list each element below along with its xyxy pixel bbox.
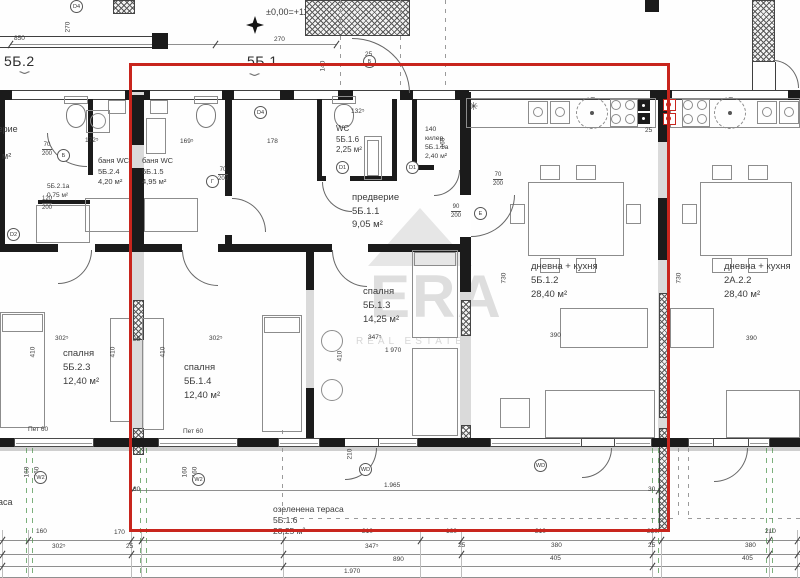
circle-marker: D4 (70, 0, 83, 13)
furniture (726, 390, 800, 438)
floor-plan-canvas: ±0,00=+110,50 ERA REAL ESTATE 5Б.25Б.1ба… (0, 0, 800, 578)
furniture (748, 165, 768, 180)
wall-segment (752, 62, 753, 90)
window (14, 438, 94, 447)
fixture-circle (90, 113, 106, 129)
wall-segment (678, 448, 679, 518)
chevron-down-icon: ⌄ (14, 66, 36, 77)
fixture-circle (683, 114, 693, 124)
wall-segment (0, 244, 58, 252)
dimension-label: 160 (25, 467, 32, 478)
wall-segment (0, 540, 800, 541)
wall-segment (645, 0, 659, 12)
dimension-label: 405 (550, 556, 561, 563)
dimension-label: 270 (66, 22, 73, 33)
dimension-label: 347⁵ (365, 544, 379, 551)
furniture (108, 100, 126, 114)
window (748, 438, 770, 447)
dimension-label: 170 (114, 530, 125, 537)
circle-marker: W2 (34, 471, 47, 484)
wall-segment (688, 518, 800, 519)
dimension-label: 850 (14, 36, 25, 43)
dimension-label: 210 (765, 529, 776, 536)
toilet (64, 96, 88, 104)
furniture (700, 182, 792, 256)
furniture (712, 165, 732, 180)
dimension-label: 302⁵ (52, 544, 66, 551)
dimension-label: 730 (677, 273, 684, 284)
room-label: спалня 5Б.2.3 12,40 м² (63, 347, 99, 389)
north-arrow-icon (246, 16, 264, 34)
dimension-label: 890 (393, 557, 404, 564)
dimension-label: 380 (551, 543, 562, 550)
wall-segment (688, 448, 689, 518)
dimension-label: 25 (648, 543, 655, 550)
cooktop-dot (728, 111, 732, 115)
furniture (2, 314, 43, 332)
wall-segment (0, 36, 168, 37)
dimension-label: 172⁵ (85, 138, 99, 145)
dimension-label: 25 (126, 544, 133, 551)
toilet (66, 104, 86, 128)
wall-segment (752, 0, 775, 62)
wall-segment (0, 438, 14, 447)
wall-segment (10, 44, 336, 45)
circle-marker: D2 (7, 228, 20, 241)
dimension-label: 160 (36, 529, 47, 536)
dimension-label: 1.970 (344, 569, 360, 576)
wall-segment (0, 47, 168, 48)
furniture (110, 318, 130, 422)
furniture (682, 204, 697, 224)
dimension-label: 410 (31, 347, 38, 358)
door-arc (58, 250, 92, 284)
dimension-label: 380 (745, 543, 756, 550)
furniture (670, 308, 714, 348)
dimension-label: 25 (458, 543, 465, 550)
dimension-label: 270 (274, 37, 285, 44)
circle-marker: Б (57, 149, 70, 162)
room-label: баня WC 5Б.2.4 4,20 м² (98, 156, 129, 188)
room-label: м² (2, 151, 11, 162)
dimension-label: 405 (742, 556, 753, 563)
furniture (85, 198, 131, 232)
wall-segment (772, 448, 773, 578)
window (688, 438, 714, 447)
door-size-label: 120200 (42, 196, 52, 212)
dimension-label: 410 (111, 347, 118, 358)
fixture-circle (697, 114, 707, 124)
wall-segment (0, 566, 800, 567)
room-label: предверие (0, 124, 18, 135)
door-arc (773, 60, 799, 88)
wall-segment (0, 92, 5, 245)
wall-segment (113, 0, 135, 14)
highlight-rectangle (129, 63, 670, 532)
wall-segment (152, 33, 168, 49)
fixture-circle (762, 107, 772, 117)
room-label: тераса (0, 497, 13, 508)
dimension-label: 390 (746, 336, 757, 343)
door-arc (714, 448, 748, 482)
dimension-label: 302⁵ (55, 336, 69, 343)
fixture-circle (683, 100, 693, 110)
dim-tick (334, 41, 340, 49)
wall-segment (770, 438, 800, 447)
room-label: дневна + кухня 2А.2.2 28,40 м² (724, 260, 791, 302)
door-size-label: 70200 (42, 142, 52, 158)
fixture-circle (697, 100, 707, 110)
wall-segment (0, 554, 800, 555)
fixture-circle (784, 107, 794, 117)
wall-segment (305, 0, 410, 36)
dimension-label: Пет 60 (28, 427, 48, 434)
